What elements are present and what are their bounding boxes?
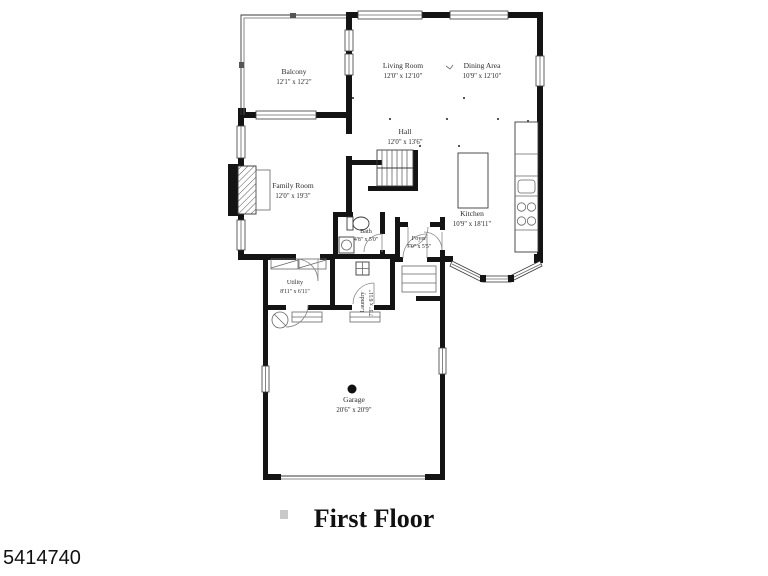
kitchen-island [458, 153, 488, 208]
kitchen-counter [515, 122, 538, 252]
window-dining-top [450, 11, 508, 19]
floorplan-page: Balcony 12'1" x 12'2" Living Room 12'0" … [0, 0, 768, 576]
room-label-balcony: Balcony [282, 67, 307, 76]
window-garage-left [262, 366, 269, 392]
balcony-railing [239, 13, 346, 115]
room-label-kitchen: Kitchen [460, 209, 484, 218]
room-dims-dining-area: 10'9" x 12'10" [463, 73, 502, 80]
room-dims-balcony: 12'1" x 12'2" [276, 79, 311, 86]
room-dims-living-room: 12'0" x 12'10" [384, 73, 423, 80]
room-label-dining-area: Dining Area [464, 61, 502, 70]
laundry-tub-icon [356, 262, 369, 275]
room-label-laundry: Laundry [359, 291, 366, 313]
kitchen-fixtures [458, 122, 538, 252]
room-dims-foyer: 7'0" x 5'5" [407, 244, 431, 250]
room-label-bath: Bath [360, 228, 373, 235]
window-family-left-2 [237, 220, 245, 250]
room-label-family-room: Family Room [272, 181, 314, 190]
room-label-garage: Garage [343, 395, 365, 404]
water-heater-icon [272, 312, 288, 328]
window-living-top [358, 11, 422, 19]
room-dims-utility: 8'11" x 6'11" [280, 289, 310, 295]
window-balcony-divider-1 [345, 30, 353, 51]
listing-id: 5414740 [3, 547, 81, 569]
fireplace-icon [238, 166, 270, 214]
window-balcony-divider-2 [345, 54, 353, 75]
window-garage-right [439, 348, 446, 374]
room-dims-laundry: 7'3" x 6'11" [369, 290, 375, 317]
room-dims-garage: 20'6" x 20'9" [336, 407, 371, 414]
column-dot [348, 385, 357, 394]
room-label-utility: Utility [287, 279, 304, 286]
room-label-living-room: Living Room [383, 61, 423, 70]
stairs [377, 150, 413, 186]
window-right-wall [536, 56, 544, 86]
north-mark [446, 65, 453, 69]
window-family-left-1 [237, 126, 245, 158]
room-dims-family-room: 12'0" x 19'3" [275, 193, 310, 200]
floorplan-drawing: Balcony 12'1" x 12'2" Living Room 12'0" … [0, 0, 768, 576]
room-dims-hall: 12'0" x 13'6" [387, 139, 422, 146]
room-label-hall: Hall [399, 127, 412, 136]
artifact-mark [280, 510, 288, 519]
garage-door-opening [281, 473, 425, 481]
room-label-foyer: Foyer [412, 235, 426, 242]
room-dims-bath: 4'8" x 5'0" [354, 237, 378, 243]
room-dims-kitchen: 10'9" x 18'11" [453, 221, 492, 228]
window-family-top [256, 111, 316, 119]
bay-window [450, 261, 542, 282]
page-title: First Floor [314, 504, 435, 533]
sink-icon [339, 237, 354, 253]
